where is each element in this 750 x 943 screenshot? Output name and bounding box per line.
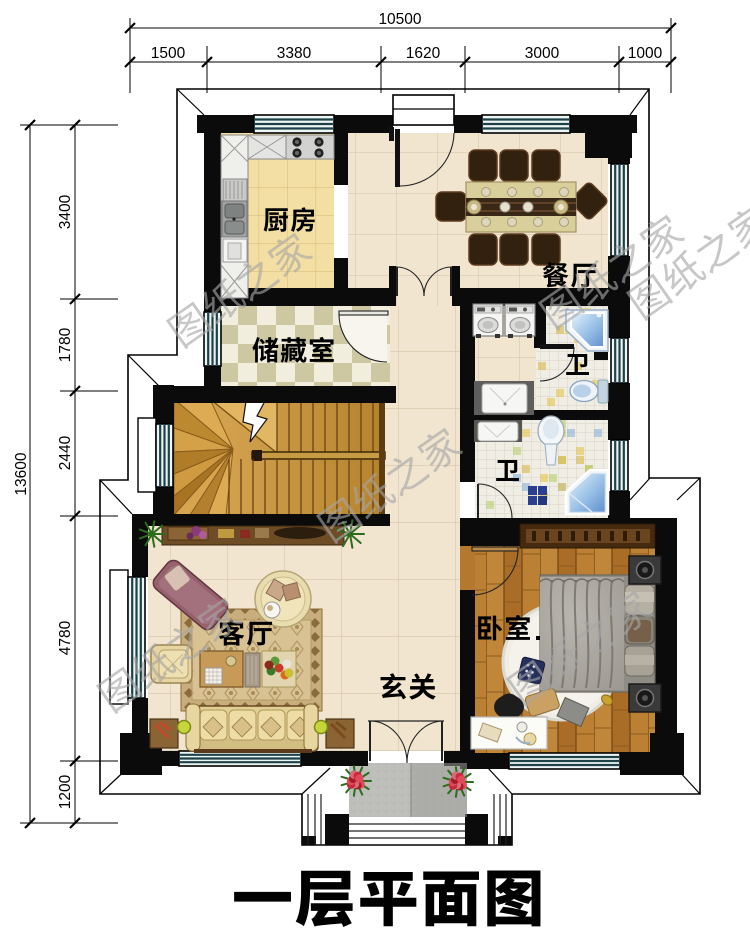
svg-text:3380: 3380 [277, 45, 312, 62]
svg-text:1500: 1500 [151, 45, 186, 62]
svg-text:1780: 1780 [57, 327, 74, 362]
svg-text:1000: 1000 [628, 45, 663, 62]
svg-text:2440: 2440 [57, 435, 74, 470]
svg-text:10500: 10500 [378, 11, 421, 28]
svg-text:13600: 13600 [13, 452, 30, 495]
svg-text:1620: 1620 [406, 45, 441, 62]
svg-text:4780: 4780 [57, 620, 74, 655]
svg-text:1200: 1200 [57, 774, 74, 809]
svg-text:3000: 3000 [525, 45, 560, 62]
svg-text:3400: 3400 [57, 194, 74, 229]
